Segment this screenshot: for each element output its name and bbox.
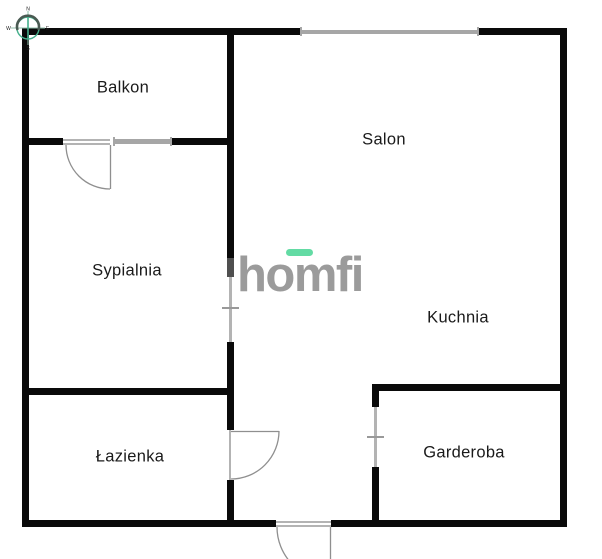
compass-w-label: W	[6, 26, 11, 32]
window-salon-tick-right	[477, 27, 479, 36]
compass-s-label: S	[26, 46, 30, 50]
sliding-door-sypialnia	[229, 277, 232, 342]
sliding-door-pocket-sypialnia	[227, 258, 234, 277]
wall-garderoba-lower	[372, 467, 379, 527]
room-label-balkon: Balkon	[97, 79, 149, 98]
balcony-door-jamb-top	[63, 139, 110, 141]
bathroom-door-jamb	[229, 430, 231, 480]
wall-balkon-bottom-left	[22, 138, 63, 145]
bathroom-door-arc	[231, 431, 279, 479]
window-balkon	[114, 139, 172, 144]
wall-bottom-right	[331, 520, 567, 527]
room-label-garderoba: Garderoba	[423, 444, 505, 463]
room-label-salon: Salon	[362, 131, 406, 150]
wall-left	[22, 28, 29, 527]
wall-right	[560, 28, 567, 527]
wall-top-left	[22, 28, 302, 35]
floor-plan: Balkon Salon Sypialnia Kuchnia Łazienka …	[0, 0, 602, 559]
wall-garderoba-upper	[372, 384, 379, 407]
homfi-logo-text: homfi	[237, 251, 363, 300]
wall-balkon-bottom-right	[172, 138, 234, 145]
window-salon-top	[302, 30, 478, 34]
homfi-logo: homfi	[237, 249, 369, 303]
window-salon-tick-left	[300, 27, 302, 36]
wall-bottom-left	[22, 520, 276, 527]
wall-kuchnia-garderoba	[372, 384, 567, 391]
window-balkon-tick-left	[113, 137, 115, 146]
room-label-kuchnia: Kuchnia	[427, 309, 489, 328]
wall-center-middle	[227, 342, 234, 430]
compass-n-label: N	[26, 7, 30, 13]
entrance-door-arc	[277, 527, 330, 559]
sliding-door-tick-garderoba	[367, 436, 384, 438]
wall-sypialnia-lazienka	[22, 388, 234, 395]
room-label-lazienka: Łazienka	[96, 448, 164, 467]
room-label-sypialnia: Sypialnia	[92, 262, 162, 281]
balcony-door-jamb-bottom	[63, 143, 110, 145]
entrance-door-jamb-bottom	[276, 525, 331, 527]
wall-center-upper	[227, 35, 234, 258]
sliding-door-tick-sypialnia	[222, 307, 239, 309]
balcony-door-arc	[66, 145, 110, 189]
compass-e-label: E	[46, 26, 50, 32]
entrance-door-jamb-top	[276, 521, 331, 523]
wall-center-lower	[227, 480, 234, 527]
compass-icon: N E S W	[6, 6, 50, 50]
wall-top-right	[478, 28, 567, 35]
